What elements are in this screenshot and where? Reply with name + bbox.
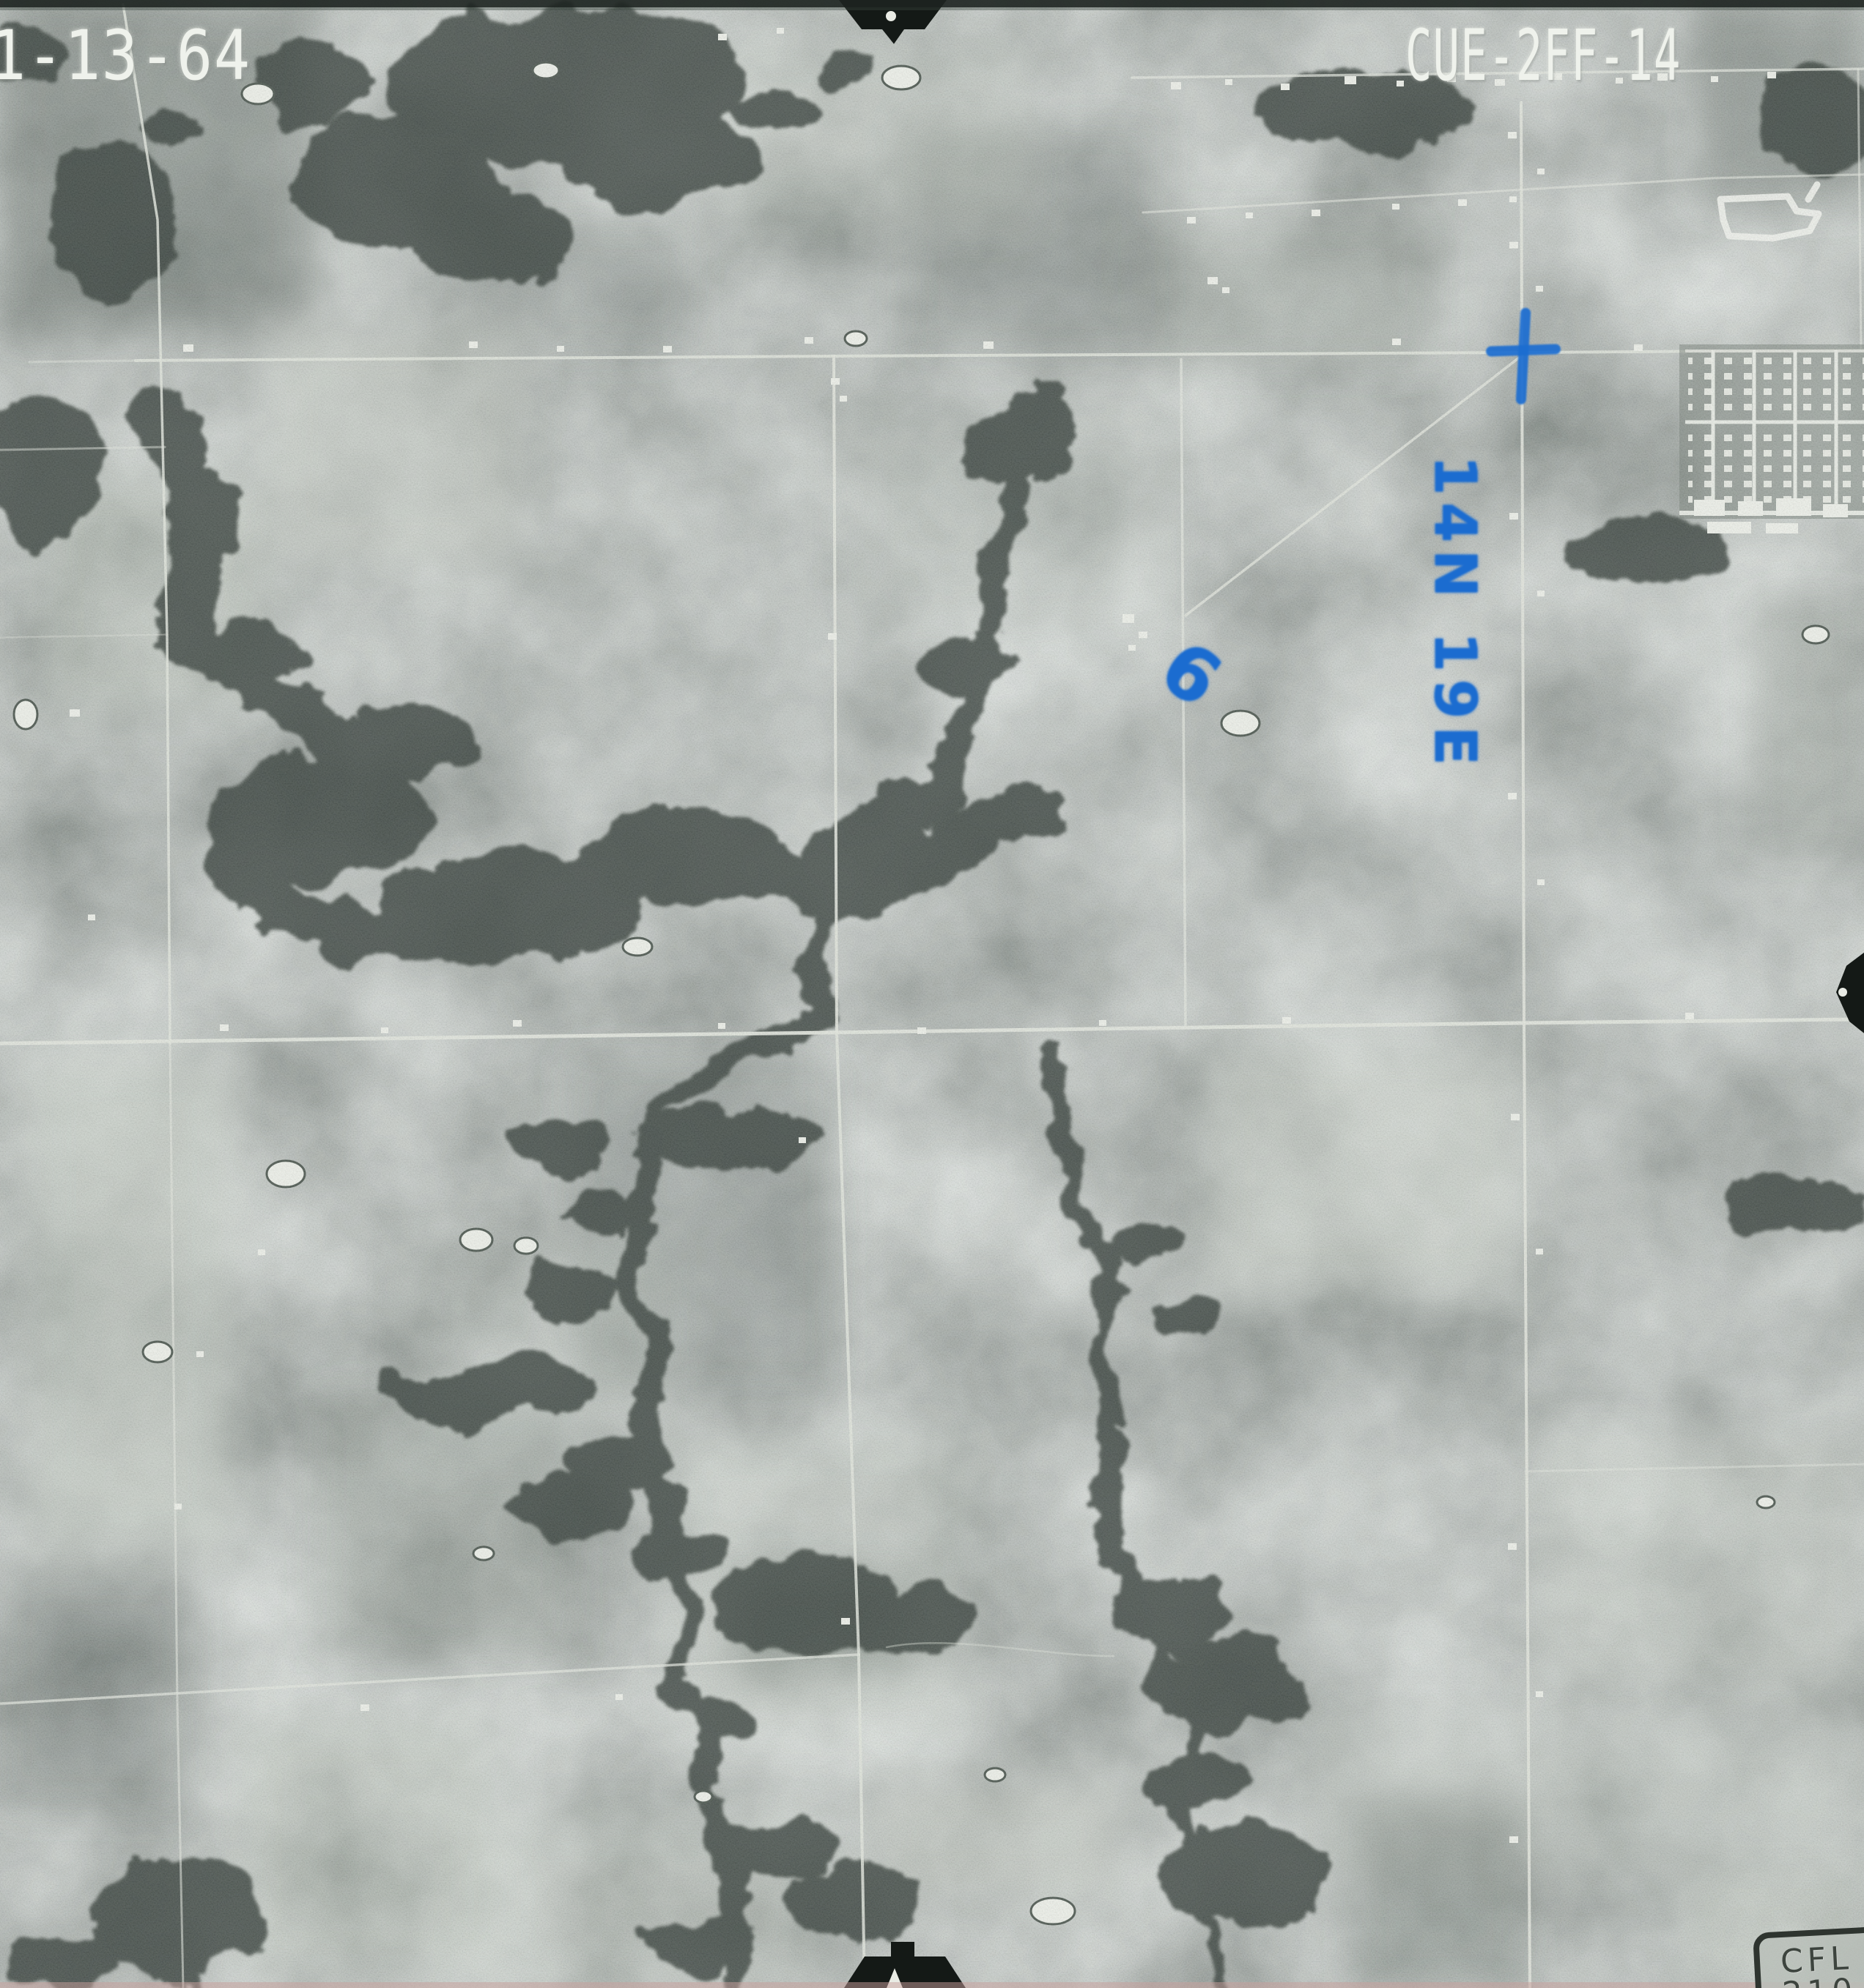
township-range-annotation: 14N 19E: [1426, 456, 1483, 773]
date-stamp: 1-13-64: [0, 22, 251, 91]
aerial-photo: 1-13-64 CUE-2FF-14 14N 19E 6 CFL 210.37: [0, 0, 1864, 1988]
corner-stamp-text: CFL 210.37: [1780, 1938, 1864, 1988]
aerial-photo-image: [0, 0, 1864, 1988]
film-edge-top: [0, 0, 1864, 7]
photo-id: CUE-2FF-14: [1405, 21, 1682, 91]
corner-stamp: CFL 210.37: [1753, 1923, 1864, 1988]
film-edge-bottom: [0, 1982, 1864, 1988]
